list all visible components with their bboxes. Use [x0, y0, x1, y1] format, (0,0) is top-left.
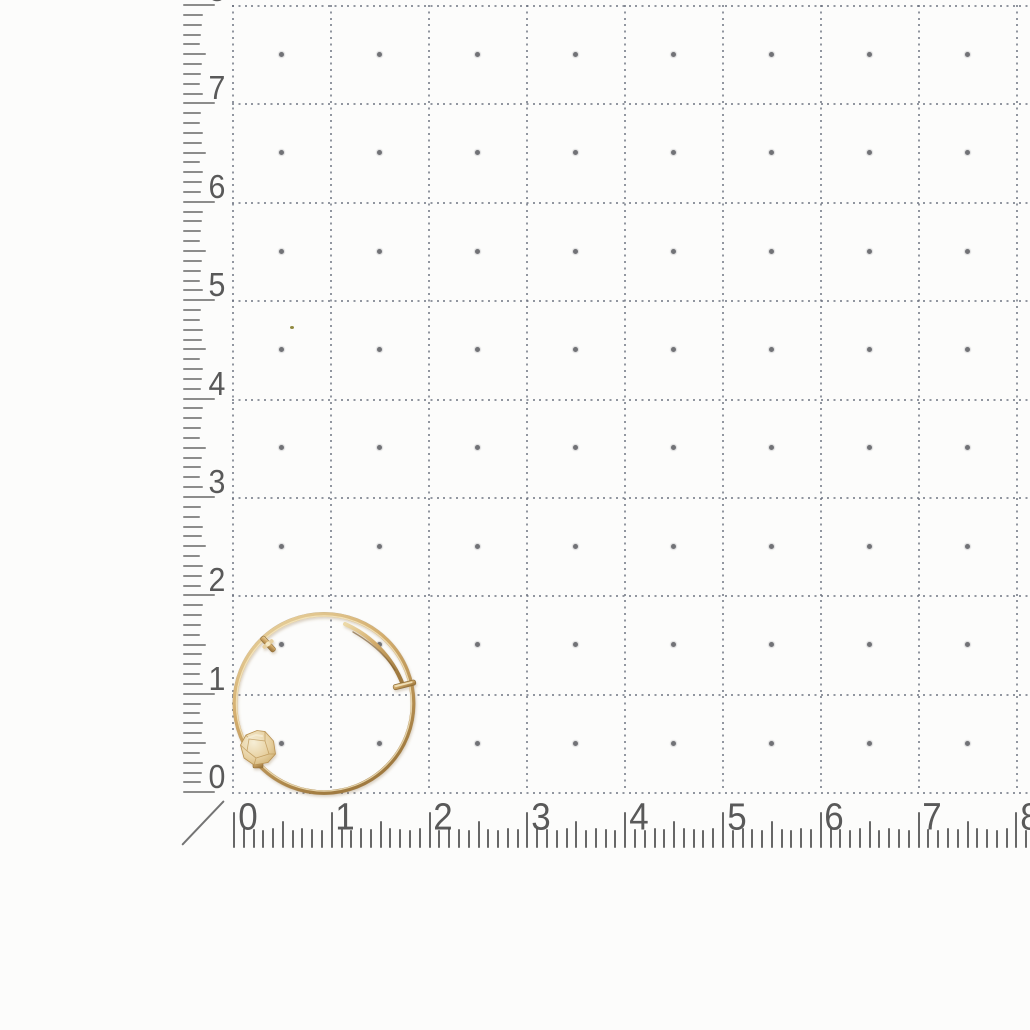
left-ruler-tick	[183, 270, 201, 272]
grid-dot	[573, 249, 578, 254]
left-ruler-number: 6	[209, 168, 226, 206]
bottom-ruler-tick	[800, 828, 802, 848]
left-ruler-tick	[183, 614, 202, 616]
grid-dot	[279, 52, 284, 57]
left-ruler-tick	[183, 545, 206, 547]
left-ruler-tick	[183, 526, 203, 528]
grid-dot	[965, 347, 970, 352]
grid-hline	[232, 399, 1030, 401]
bottom-ruler-tick	[663, 829, 665, 848]
grid-dot	[769, 52, 774, 57]
grid-dot	[671, 52, 676, 57]
left-ruler-tick	[183, 63, 202, 65]
grid-dot	[965, 642, 970, 647]
left-ruler-tick	[183, 358, 200, 360]
grid-hline	[232, 103, 1030, 105]
grid-dot	[867, 347, 872, 352]
grid-dot	[671, 544, 676, 549]
left-ruler-tick	[183, 171, 203, 173]
bottom-ruler-tick	[908, 830, 910, 848]
grid-dot	[475, 741, 480, 746]
bottom-ruler-tick	[888, 828, 890, 848]
bottom-ruler-tick	[468, 830, 470, 848]
photo-canvas: 876543210 012345678	[0, 0, 1030, 1030]
bottom-ruler-tick	[996, 830, 998, 848]
bottom-ruler-tick	[507, 828, 509, 848]
bottom-ruler-tick	[497, 830, 499, 848]
grid-dot	[671, 445, 676, 450]
bottom-ruler-tick	[526, 812, 528, 848]
grid-hline	[232, 5, 1030, 7]
grid-hline	[232, 497, 1030, 499]
left-ruler-tick	[183, 575, 202, 577]
bottom-ruler-tick	[967, 821, 969, 848]
bottom-ruler-number: 7	[922, 797, 941, 840]
grid-dot	[573, 445, 578, 450]
left-ruler-tick	[183, 585, 201, 587]
latch-wire-crease	[353, 632, 395, 670]
grid-dot	[965, 249, 970, 254]
grid-dot	[377, 544, 382, 549]
grid-dot	[769, 150, 774, 155]
grid-dot	[573, 347, 578, 352]
grid-dot	[377, 52, 382, 57]
bottom-ruler-tick	[693, 829, 695, 848]
paper-speck	[290, 326, 294, 329]
left-ruler-tick	[183, 122, 200, 124]
left-ruler-tick	[183, 722, 203, 724]
left-ruler-tick	[183, 781, 201, 783]
grid-dot	[867, 445, 872, 450]
bottom-ruler-tick	[976, 828, 978, 848]
left-ruler-tick	[183, 83, 200, 85]
grid-dot	[867, 150, 872, 155]
bottom-ruler-tick	[331, 812, 333, 848]
left-ruler-tick	[183, 653, 202, 655]
left-ruler-tick	[183, 319, 200, 321]
grid-dot	[769, 741, 774, 746]
bottom-ruler-number: 4	[629, 797, 648, 840]
bottom-ruler-tick	[1006, 828, 1008, 848]
left-ruler-tick	[183, 663, 201, 665]
grid-dot	[475, 642, 480, 647]
left-ruler-tick	[183, 407, 203, 409]
grid-dot	[279, 544, 284, 549]
left-ruler-tick	[183, 14, 203, 16]
faceted-bead	[241, 731, 276, 769]
grid-dot	[573, 544, 578, 549]
grid-hline	[232, 595, 1030, 597]
grid-dot	[377, 445, 382, 450]
bottom-ruler-tick	[898, 829, 900, 848]
bottom-ruler-tick	[517, 829, 519, 848]
bottom-ruler-tick	[233, 812, 235, 848]
grid-dot	[867, 52, 872, 57]
bottom-ruler-tick	[1015, 812, 1017, 848]
left-ruler-tick	[183, 732, 202, 734]
bottom-ruler-tick	[702, 830, 704, 848]
left-ruler-tick	[183, 289, 203, 291]
left-ruler-tick	[183, 260, 202, 262]
bottom-ruler-tick	[399, 829, 401, 848]
bottom-ruler-tick	[614, 830, 616, 848]
bottom-ruler-tick	[790, 830, 792, 848]
left-ruler-tick	[183, 161, 200, 163]
bottom-ruler-tick	[673, 821, 675, 848]
bottom-ruler-tick	[292, 830, 294, 848]
bottom-ruler-tick	[918, 812, 920, 848]
grid-dot	[867, 249, 872, 254]
left-ruler-tick	[183, 516, 200, 518]
bottom-ruler-tick	[947, 828, 949, 848]
left-ruler-tick	[183, 388, 201, 390]
bottom-ruler-tick	[311, 829, 313, 848]
left-ruler-tick	[183, 752, 200, 754]
grid-dot	[965, 445, 970, 450]
bottom-ruler-tick	[605, 829, 607, 848]
left-ruler-tick	[183, 211, 203, 213]
left-ruler-tick	[183, 309, 201, 311]
hinge-clasp	[260, 635, 277, 653]
left-ruler-tick	[183, 348, 206, 350]
bottom-ruler-tick	[595, 828, 597, 848]
bottom-ruler-tick	[429, 812, 431, 848]
left-ruler-number: 2	[209, 561, 226, 599]
bottom-ruler-tick	[820, 812, 822, 848]
left-ruler-tick	[183, 230, 201, 232]
grid-dot	[475, 544, 480, 549]
grid-hline	[232, 300, 1030, 302]
bottom-ruler-tick	[458, 829, 460, 848]
left-ruler-tick	[183, 673, 200, 675]
bottom-ruler-number: 6	[825, 797, 844, 840]
left-ruler-tick	[183, 712, 200, 714]
left-ruler-tick	[183, 506, 201, 508]
grid-dot	[377, 249, 382, 254]
left-ruler-tick	[183, 280, 200, 282]
bottom-ruler-tick	[566, 828, 568, 848]
grid-dot	[573, 150, 578, 155]
bottom-ruler-tick	[478, 821, 480, 848]
bottom-ruler-tick	[624, 812, 626, 848]
left-ruler-tick	[183, 132, 203, 134]
left-ruler-tick	[183, 240, 200, 242]
bottom-ruler-tick	[761, 830, 763, 848]
left-ruler-tick	[183, 93, 203, 95]
left-ruler-tick	[183, 447, 206, 449]
grid-dot	[769, 445, 774, 450]
grid-dot	[769, 544, 774, 549]
left-ruler-tick	[183, 43, 200, 45]
grid-hline	[232, 202, 1030, 204]
left-ruler-tick	[183, 683, 203, 685]
grid-dot	[475, 445, 480, 450]
bottom-ruler-tick	[869, 821, 871, 848]
grid-dot	[965, 150, 970, 155]
grid-dot	[573, 741, 578, 746]
left-ruler-tick	[183, 634, 200, 636]
left-ruler-tick	[183, 152, 206, 154]
left-ruler-number: 3	[209, 463, 226, 501]
bottom-ruler-tick	[859, 828, 861, 848]
bottom-ruler-tick	[585, 830, 587, 848]
left-ruler-tick	[183, 220, 202, 222]
left-ruler-tick	[183, 142, 202, 144]
grid-dot	[377, 150, 382, 155]
grid-dot	[769, 347, 774, 352]
left-ruler-tick	[183, 112, 201, 114]
left-ruler-tick	[183, 250, 206, 252]
grid-dot	[769, 249, 774, 254]
grid-dot	[965, 544, 970, 549]
grid-dot	[965, 52, 970, 57]
bottom-ruler-tick	[654, 828, 656, 848]
bottom-ruler-tick	[380, 821, 382, 848]
bottom-ruler-tick	[957, 829, 959, 848]
left-ruler-number: 8	[209, 0, 226, 9]
grid-dot	[965, 741, 970, 746]
left-ruler-tick	[183, 329, 203, 331]
left-ruler-tick	[183, 339, 202, 341]
left-ruler-tick	[183, 772, 202, 774]
bottom-ruler-tick	[321, 830, 323, 848]
grid-dot	[279, 347, 284, 352]
bottom-ruler-tick	[878, 830, 880, 848]
grid-dot	[573, 52, 578, 57]
grid-dot	[671, 741, 676, 746]
left-ruler-number: 5	[209, 266, 226, 304]
left-ruler-tick	[183, 437, 200, 439]
bottom-ruler-tick	[712, 828, 714, 848]
gold-hoop-earring	[222, 602, 432, 812]
bottom-ruler-number: 3	[531, 797, 550, 840]
grid-dot	[475, 52, 480, 57]
bottom-ruler-tick	[810, 829, 812, 848]
bottom-ruler-tick	[389, 828, 391, 848]
left-ruler-tick	[183, 466, 201, 468]
grid-dot	[867, 642, 872, 647]
grid-dot	[279, 445, 284, 450]
left-ruler-tick	[183, 53, 206, 55]
left-ruler-tick	[183, 457, 202, 459]
bottom-ruler-tick	[282, 821, 284, 848]
left-ruler-tick	[183, 762, 203, 764]
grid-dot	[279, 249, 284, 254]
grid-dot	[475, 249, 480, 254]
left-ruler-tick	[183, 368, 203, 370]
bottom-ruler-number: 2	[433, 797, 452, 840]
left-ruler-tick	[183, 624, 201, 626]
bottom-ruler-tick	[849, 830, 851, 848]
left-ruler-tick	[183, 181, 202, 183]
grid-dot	[475, 347, 480, 352]
left-ruler-tick	[183, 742, 206, 744]
bottom-ruler-tick	[272, 828, 274, 848]
bottom-ruler-number: 5	[727, 797, 746, 840]
left-ruler-tick	[183, 604, 203, 606]
bottom-ruler-tick	[722, 812, 724, 848]
bottom-ruler-tick	[781, 829, 783, 848]
grid-dot	[671, 642, 676, 647]
bottom-ruler-tick	[751, 829, 753, 848]
left-ruler-number: 4	[209, 365, 226, 403]
bottom-ruler-tick	[986, 829, 988, 848]
ruler-corner-diagonal-mark	[181, 800, 225, 846]
grid-dot	[867, 544, 872, 549]
bottom-ruler-tick	[262, 830, 264, 848]
left-ruler-tick	[183, 703, 201, 705]
bottom-ruler-tick	[487, 829, 489, 848]
bottom-ruler-number: 8	[1020, 797, 1030, 840]
bottom-ruler-tick	[419, 828, 421, 848]
left-ruler-tick	[183, 73, 201, 75]
left-ruler-tick	[183, 486, 203, 488]
grid-dot	[279, 150, 284, 155]
grid-dot	[867, 741, 872, 746]
left-ruler-tick	[183, 644, 206, 646]
grid-dot	[475, 150, 480, 155]
grid-dot	[671, 150, 676, 155]
grid-dot	[377, 347, 382, 352]
left-ruler-tick	[183, 476, 200, 478]
bottom-ruler-tick	[771, 821, 773, 848]
bottom-ruler-tick	[301, 828, 303, 848]
left-ruler-tick	[183, 535, 202, 537]
grid-dot	[671, 347, 676, 352]
left-ruler-tick	[183, 565, 203, 567]
left-ruler-tick	[183, 417, 202, 419]
grid-dot	[769, 642, 774, 647]
bottom-ruler-tick	[370, 829, 372, 848]
bottom-ruler-tick	[575, 821, 577, 848]
left-ruler-number: 7	[209, 69, 226, 107]
grid-dot	[573, 642, 578, 647]
bottom-ruler-tick	[683, 828, 685, 848]
grid-dot	[671, 249, 676, 254]
left-ruler-tick	[183, 191, 201, 193]
bottom-ruler-tick	[409, 830, 411, 848]
left-ruler-tick	[183, 378, 202, 380]
left-ruler-tick	[183, 24, 202, 26]
left-ruler-tick	[183, 427, 201, 429]
bottom-ruler-tick	[360, 828, 362, 848]
left-ruler-tick	[183, 34, 201, 36]
left-ruler-tick	[183, 555, 200, 557]
bottom-ruler-tick	[556, 830, 558, 848]
